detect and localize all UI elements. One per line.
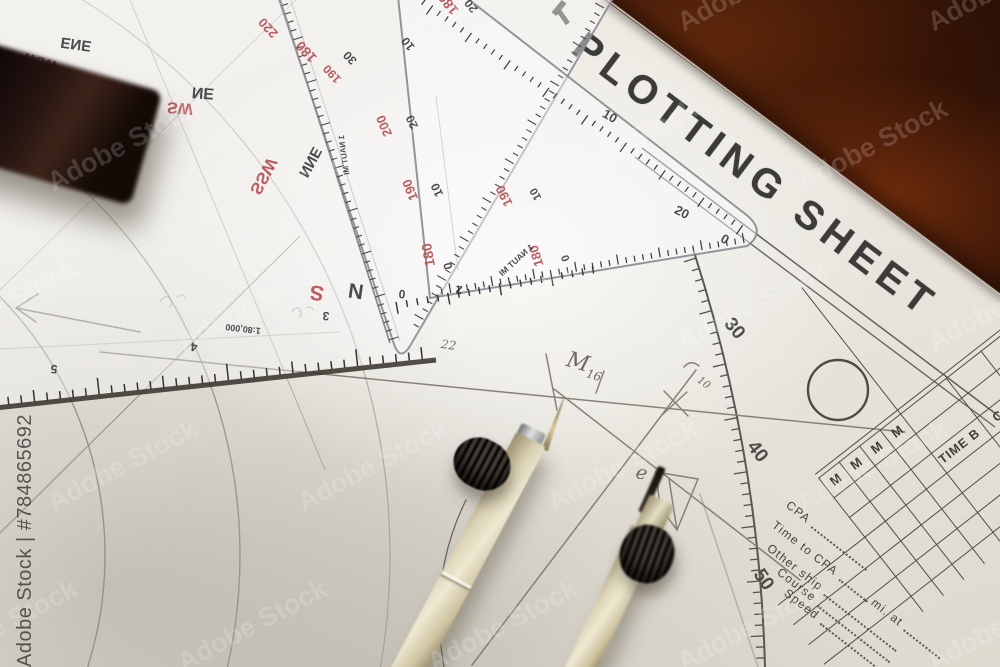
watermark-tile: Adobe Stock (292, 413, 452, 518)
watermark-tile: Adobe Stock (672, 0, 832, 38)
watermark-tile: Adobe Stock (172, 0, 332, 38)
watermark-tile: Adobe Stock (42, 93, 202, 198)
watermark-tile: Adobe Stock (42, 413, 202, 518)
watermark-tile: Adobe Stock (672, 253, 832, 358)
watermark-tile: Adobe Stock (0, 253, 83, 358)
watermark-tile: Adobe Stock (542, 413, 702, 518)
watermark-tile: Adobe Stock (422, 253, 582, 358)
watermark-tile: Adobe Stock (672, 573, 832, 667)
watermark-tile: Adobe Stock (792, 93, 952, 198)
watermark-tile: Adobe Stock (922, 0, 1000, 38)
watermark-credit: Adobe Stock | #784865692 (14, 414, 37, 667)
watermark-tile: Adobe Stock (172, 253, 332, 358)
watermark-layer: Adobe StockAdobe StockAdobe StockAdobe S… (0, 0, 1000, 667)
watermark-tile: Adobe Stock (792, 413, 952, 518)
watermark-tile: Adobe Stock (422, 0, 582, 38)
watermark-tile: Adobe Stock (0, 0, 83, 38)
watermark-tile: Adobe Stock (922, 253, 1000, 358)
watermark-tile: Adobe Stock (0, 573, 83, 667)
watermark-tile: Adobe Stock (422, 573, 582, 667)
watermark-tile: Adobe Stock (172, 573, 332, 667)
photo-stage: CPA Time to CPA mi. at Other ship Course… (0, 0, 1000, 667)
watermark-tile: Adobe Stock (292, 93, 452, 198)
watermark-tile: Adobe Stock (542, 93, 702, 198)
watermark-tile: Adobe Stock (922, 573, 1000, 667)
